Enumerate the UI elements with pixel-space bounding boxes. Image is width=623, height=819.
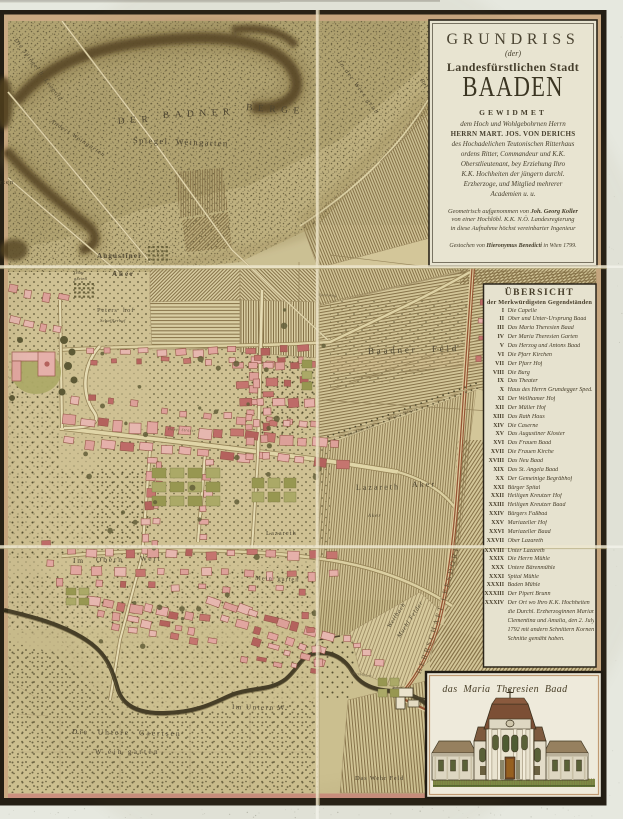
svg-text:das Maria Theresien Baad: das Maria Theresien Baad: [442, 684, 568, 695]
